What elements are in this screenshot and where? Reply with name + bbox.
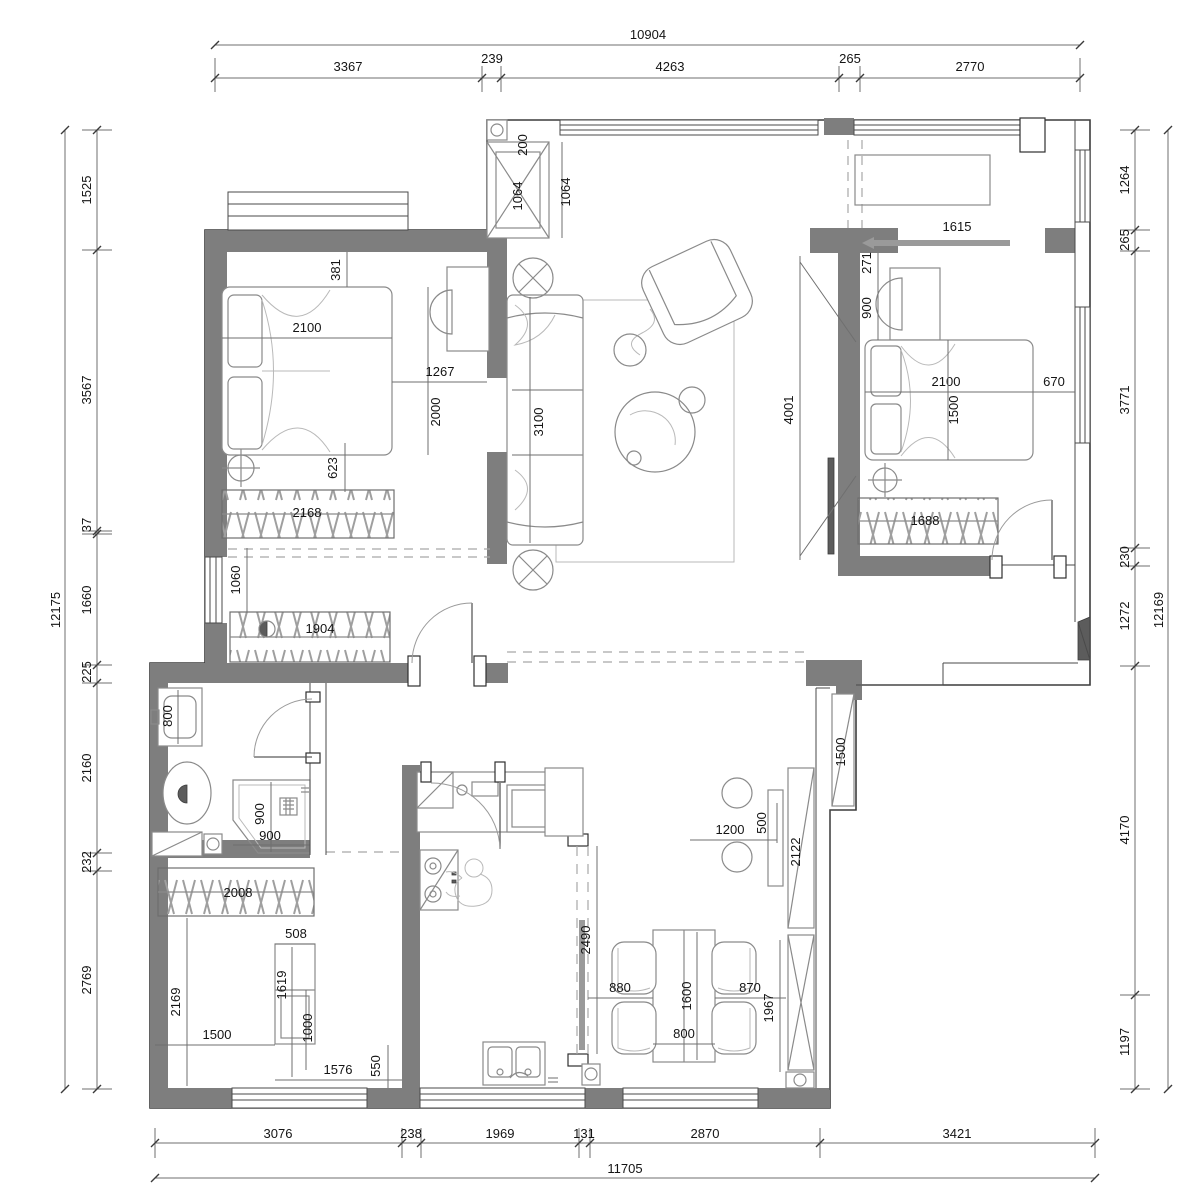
- dim-shower-d: 900: [259, 828, 281, 843]
- living-room: 200 1064 1064 3100 4001: [507, 134, 856, 590]
- window-living-top: [560, 120, 1020, 135]
- floor-plan-drawing: 10904 3367 239 4263 265 2770 3076 238 19…: [0, 0, 1200, 1200]
- dim-1500-cab: 1500: [833, 738, 848, 767]
- wall-bedroom1-left-low: [205, 623, 227, 663]
- window-kitchen-bottom: [420, 1088, 585, 1108]
- dining: 1200 500 2122 1500 880 1: [588, 694, 854, 1088]
- dim-1064: 1064: [558, 178, 573, 207]
- coffee-table: [615, 387, 705, 472]
- dim-top-4: 265: [839, 51, 861, 66]
- washbasin: 800: [151, 688, 202, 746]
- wall-bedroom2-bottom: [838, 556, 996, 576]
- bathroom: 800 900 900: [151, 683, 326, 856]
- bedroom2-door: [990, 500, 1066, 578]
- tv: [828, 458, 834, 554]
- closet-1904: [230, 612, 390, 662]
- ceiling-fan-icon-1: [513, 258, 553, 298]
- window-bedroom1-left: [205, 557, 222, 623]
- wall-bottom-3: [585, 1088, 623, 1108]
- dim-1500-room3: 1500: [203, 1027, 232, 1042]
- hall-cabinet-1500: 1500: [832, 694, 854, 806]
- dim-top-total: 10904: [630, 27, 666, 42]
- dim-top-5: 2770: [956, 59, 985, 74]
- desk-bedroom2: [876, 268, 940, 340]
- dim-bottom-6: 3421: [943, 1126, 972, 1141]
- dim-top-2: 239: [481, 51, 503, 66]
- dim-870: 870: [739, 980, 761, 995]
- dim-623: 623: [325, 457, 340, 479]
- dim-left-8: 2769: [79, 966, 94, 995]
- dim-left-4: 1660: [79, 586, 94, 615]
- dim-200: 200: [515, 134, 530, 156]
- dim-bottom-4: 131: [573, 1126, 595, 1141]
- wall-bottom-1: [150, 1088, 232, 1108]
- bath-cabinet: [152, 832, 222, 856]
- dim-left-2: 3567: [79, 376, 94, 405]
- dim-shower-w: 900: [252, 803, 267, 825]
- kitchen-dining-wall: [545, 768, 583, 836]
- dim-1576: 1576: [324, 1062, 353, 1077]
- counter-top: [417, 772, 553, 832]
- sink: [483, 1042, 558, 1085]
- window-balcony-right: [1075, 150, 1090, 222]
- bedroom2: 1615 271 900 2100 1500 670 1688: [858, 219, 1075, 578]
- floor-box-1: [582, 1064, 600, 1085]
- dimension-chain-right: 1264 265 3771 230 1272 4170 1197 12169: [1117, 126, 1172, 1093]
- tall-cabinet-2122: 2122: [788, 768, 814, 928]
- dim-880: 880: [609, 980, 631, 995]
- dim-1200: 1200: [716, 822, 745, 837]
- dim-800-table: 800: [673, 1026, 695, 1041]
- dimension-chain-left: 1525 3567 37 1660 225 2160 232 2769 1217…: [48, 126, 112, 1093]
- dim-right-4: 230: [1117, 546, 1132, 568]
- entry: [1078, 617, 1090, 660]
- floor-plan-page: 10904 3367 239 4263 265 2770 3076 238 19…: [0, 0, 1200, 1200]
- dim-right-5: 1272: [1117, 602, 1132, 631]
- cable-squiggle: [631, 309, 654, 355]
- slider-dining-bottom: [623, 1088, 758, 1108]
- kitchen: 2490: [417, 762, 600, 1085]
- dim-left-5: 225: [79, 661, 94, 683]
- dim-550: 550: [368, 1055, 383, 1077]
- tall-cabinet-x: 1967: [761, 935, 814, 1072]
- dim-500: 500: [754, 812, 769, 834]
- dim-1060: 1060: [228, 566, 243, 595]
- dim-381: 381: [328, 259, 343, 281]
- dim-bottom-total: 11705: [607, 1161, 642, 1176]
- dim-wardrobe-2168: 2168: [293, 505, 322, 520]
- dim-bed1-width: 2100: [293, 320, 322, 335]
- dim-closet-1904: 1904: [306, 621, 335, 636]
- wall-top-pier: [824, 118, 854, 135]
- dim-left-7: 232: [79, 851, 94, 873]
- dim-900-desk: 900: [859, 297, 874, 319]
- toilet: [163, 762, 211, 824]
- wall-bath-top: [150, 663, 412, 683]
- bedroom1: 381 2100 2000 1267 623 2168 1904 1060: [222, 252, 489, 686]
- pouf: [614, 334, 646, 366]
- wall-partition-4001: [838, 252, 860, 562]
- dim-1619: 1619: [274, 971, 289, 1000]
- dim-left-3: 37: [79, 518, 94, 532]
- dim-bottom-1: 3076: [264, 1126, 293, 1141]
- dim-wardrobe-1688: 1688: [911, 513, 940, 528]
- wall-living-left-b: [487, 452, 507, 564]
- stove: [420, 850, 458, 910]
- bed-double: [222, 287, 392, 455]
- armchair: [636, 234, 759, 351]
- shaft-fixture: [487, 120, 507, 140]
- dim-bed2-width: 2100: [932, 374, 961, 389]
- dim-2490: 2490: [578, 926, 593, 955]
- bedroom1-door: [408, 603, 486, 686]
- wall-bedroom2-top-right: [1045, 228, 1075, 253]
- dim-right-3: 3771: [1117, 386, 1132, 415]
- dim-left-total: 12175: [48, 592, 63, 628]
- dim-top-1: 3367: [334, 59, 363, 74]
- dim-right-total: 12169: [1151, 592, 1166, 628]
- dim-basin-800: 800: [160, 705, 175, 727]
- desk-bedroom1: [430, 267, 489, 351]
- dim-left-6: 2160: [79, 754, 94, 783]
- dim-right-1: 1264: [1117, 166, 1132, 195]
- ceiling-light-icon-2: [868, 463, 902, 497]
- bar-counter: 1200 500: [690, 778, 783, 886]
- dim-2169: 2169: [168, 988, 183, 1017]
- dim-1000: 1000: [300, 1014, 315, 1043]
- dim-670: 670: [1043, 374, 1065, 389]
- wall-bottom-4: [758, 1088, 830, 1108]
- dim-271: 271: [859, 252, 874, 274]
- dimension-chain-bottom: 3076 238 1969 131 2870 3421 11705: [151, 1126, 1099, 1182]
- window-bedroom2-right: [1075, 307, 1090, 443]
- wardrobe-2008: 2008: [158, 868, 314, 916]
- kitchen-slider-2490: 2490: [568, 834, 597, 1066]
- dim-top-3: 4263: [656, 59, 685, 74]
- floor-box-2: [786, 1072, 814, 1088]
- dim-bottom-2: 238: [400, 1126, 422, 1141]
- dim-2122: 2122: [788, 838, 803, 867]
- dim-left-1: 1525: [79, 176, 94, 205]
- dim-bed2-length: 1500: [946, 396, 961, 425]
- ceiling-fan-icon-2: [513, 550, 553, 590]
- dim-right-2: 265: [1117, 229, 1132, 251]
- dim-1615: 1615: [943, 219, 972, 234]
- dim-wardrobe-2008: 2008: [224, 885, 253, 900]
- planter: [855, 155, 990, 205]
- dim-1267: 1267: [426, 364, 455, 379]
- dimension-chain-top: 10904 3367 239 4263 265 2770: [211, 27, 1084, 92]
- dim-1967: 1967: [761, 994, 776, 1023]
- dim-508: 508: [285, 926, 307, 941]
- slider-room3-bottom: [232, 1088, 367, 1108]
- dim-bottom-3: 1969: [486, 1126, 515, 1141]
- dim-1064-inner: 1064: [510, 182, 525, 211]
- dim-right-7: 1197: [1117, 1028, 1132, 1056]
- dim-sofa-3100: 3100: [531, 408, 546, 437]
- bay-window-bedroom1: [228, 192, 408, 230]
- wall-bedroom1-top: [205, 230, 490, 252]
- dim-1600: 1600: [679, 982, 694, 1011]
- dim-right-6: 4170: [1117, 816, 1132, 845]
- dim-bed1-length: 2000: [428, 398, 443, 427]
- wall-bottom-2: [367, 1088, 420, 1108]
- wall-living-left-a: [487, 230, 507, 378]
- room3: 2008 508 1619 1000 2169 1500 1576 550: [155, 868, 402, 1088]
- dim-4001: 4001: [781, 396, 796, 425]
- dim-bottom-5: 2870: [691, 1126, 720, 1141]
